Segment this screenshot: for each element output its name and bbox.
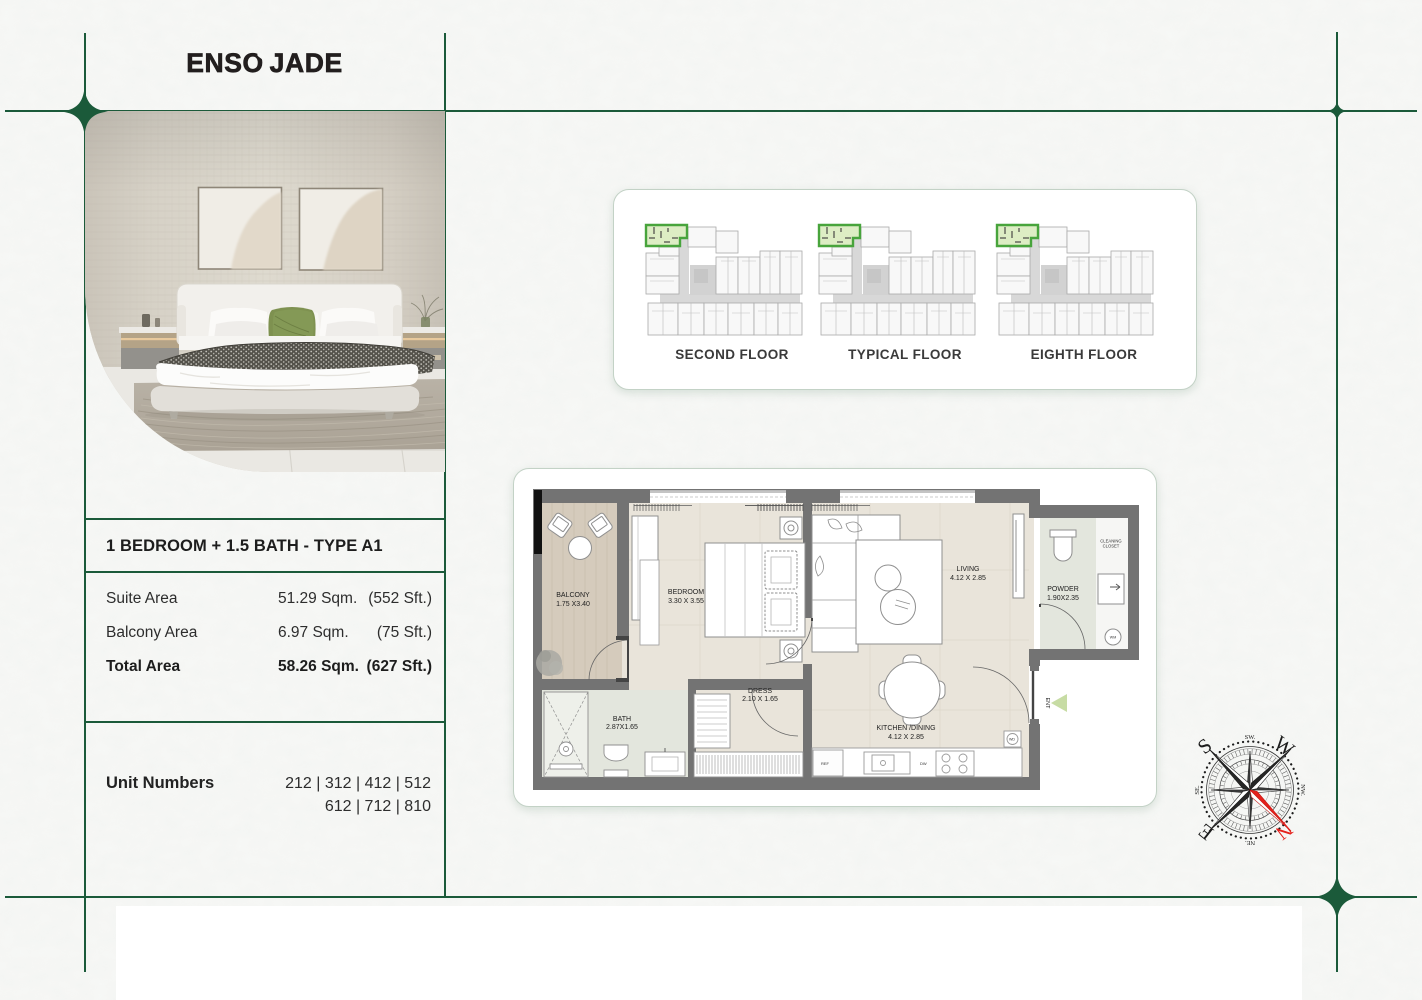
svg-text:REF: REF (821, 761, 830, 766)
svg-text:N: N (1271, 817, 1296, 844)
svg-text:4.12 X 2.85: 4.12 X 2.85 (888, 734, 924, 741)
svg-text:SW.: SW. (1245, 734, 1256, 741)
svg-text:ENT: ENT (1044, 698, 1050, 710)
svg-text:BEDROOM: BEDROOM (668, 589, 704, 596)
svg-text:NE.: NE. (1244, 839, 1255, 846)
svg-text:W: W (1269, 732, 1298, 762)
svg-text:CLOSET: CLOSET (1103, 544, 1120, 549)
svg-text:NW.: NW. (1299, 784, 1306, 796)
svg-text:S: S (1194, 734, 1217, 758)
svg-text:DRESS: DRESS (748, 688, 772, 695)
svg-text:1.90X2.35: 1.90X2.35 (1047, 595, 1079, 602)
svg-text:BATH: BATH (613, 716, 631, 723)
svg-text:DW: DW (920, 761, 927, 766)
svg-text:POWDER: POWDER (1047, 586, 1079, 593)
svg-text:SE.: SE. (1194, 785, 1201, 795)
svg-text:LIVING: LIVING (957, 566, 980, 573)
svg-text:3.30 X 3.55: 3.30 X 3.55 (668, 598, 704, 605)
svg-text:2.87X1.65: 2.87X1.65 (606, 724, 638, 731)
svg-text:BALCONY: BALCONY (556, 592, 590, 599)
svg-text:4.12 X 2.85: 4.12 X 2.85 (950, 575, 986, 582)
svg-text:1.75 X3.40: 1.75 X3.40 (556, 601, 590, 608)
svg-text:KITCHEN /DINING: KITCHEN /DINING (876, 725, 935, 732)
svg-text:E: E (1195, 819, 1218, 844)
svg-text:2.10 X 1.65: 2.10 X 1.65 (742, 696, 778, 703)
svg-text:WM: WM (1110, 636, 1116, 640)
svg-text:WD: WD (1009, 738, 1015, 742)
